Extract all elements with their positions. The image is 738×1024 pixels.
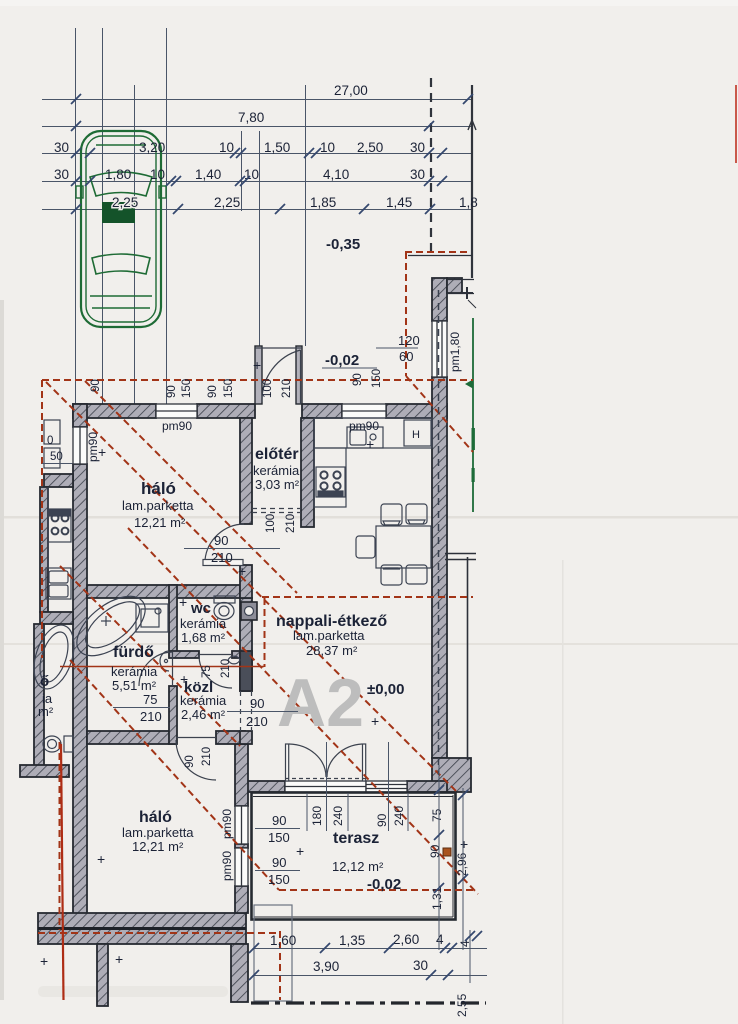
svg-text:150: 150 (181, 379, 193, 398)
svg-text:1,40: 1,40 (195, 167, 221, 182)
svg-text:+: + (371, 713, 379, 729)
svg-text:28,37 m²: 28,37 m² (306, 643, 358, 658)
svg-text:210: 210 (140, 709, 162, 724)
svg-text:1,50: 1,50 (264, 140, 290, 155)
svg-text:90: 90 (214, 533, 228, 548)
svg-text:2,60: 2,60 (393, 932, 419, 947)
svg-text:4,10: 4,10 (323, 167, 349, 182)
svg-text:100: 100 (262, 379, 274, 398)
svg-text:30: 30 (410, 167, 425, 182)
svg-text:3,90: 3,90 (313, 959, 339, 974)
svg-text:pm90: pm90 (349, 419, 379, 433)
svg-text:5,51 m²: 5,51 m² (112, 678, 157, 693)
svg-text:+: + (460, 836, 468, 852)
svg-text:27,00: 27,00 (334, 83, 368, 98)
svg-text:+: + (97, 851, 105, 867)
svg-text:-0,02: -0,02 (325, 352, 359, 369)
svg-text:90: 90 (166, 385, 178, 398)
svg-text:±0,00: ±0,00 (367, 681, 404, 698)
svg-text:90: 90 (184, 755, 196, 768)
svg-text:240: 240 (331, 806, 345, 826)
svg-text:10: 10 (320, 140, 335, 155)
svg-text:+: + (115, 951, 123, 967)
svg-text:4: 4 (436, 932, 444, 947)
svg-text:fürdő: fürdő (113, 644, 154, 661)
svg-text:0: 0 (47, 435, 53, 447)
svg-text:kerámia: kerámia (180, 616, 227, 631)
svg-text:+: + (180, 671, 188, 687)
svg-text:90: 90 (352, 373, 364, 386)
svg-text:-0,35: -0,35 (326, 236, 360, 253)
svg-text:wc: wc (190, 600, 211, 617)
svg-text:12,21 m²: 12,21 m² (132, 839, 184, 854)
svg-text:+: + (296, 843, 304, 859)
svg-text:2,25: 2,25 (214, 195, 240, 210)
svg-text:1,8: 1,8 (459, 195, 478, 210)
svg-text:75: 75 (430, 808, 444, 822)
svg-text:+: + (366, 436, 374, 452)
svg-text:2,50: 2,50 (357, 140, 383, 155)
svg-text:2,55: 2,55 (455, 993, 469, 1017)
svg-text:90: 90 (90, 379, 102, 392)
svg-text:3,03 m²: 3,03 m² (255, 477, 300, 492)
svg-text:90: 90 (428, 844, 442, 858)
svg-text:+: + (253, 357, 261, 373)
svg-text:210: 210 (201, 747, 213, 766)
svg-text:pm90: pm90 (162, 419, 192, 433)
svg-text:75: 75 (143, 692, 157, 707)
svg-text:90: 90 (272, 855, 286, 870)
svg-text:háló: háló (139, 809, 172, 826)
svg-text:1,68 m²: 1,68 m² (181, 630, 226, 645)
svg-text:210: 210 (246, 714, 268, 729)
svg-text:kerámia: kerámia (253, 463, 300, 478)
svg-text:210: 210 (285, 514, 297, 533)
svg-text:60: 60 (399, 349, 413, 364)
svg-text:210: 210 (211, 550, 233, 565)
svg-text:12,21 m²: 12,21 m² (134, 515, 186, 530)
svg-text:A2: A2 (277, 665, 364, 741)
svg-text:1,80: 1,80 (105, 167, 131, 182)
svg-text:1,85: 1,85 (310, 195, 336, 210)
svg-text:150: 150 (268, 830, 290, 845)
svg-text:m²: m² (38, 704, 54, 719)
svg-text:lam.parketta: lam.parketta (122, 498, 194, 513)
svg-text:ő: ő (40, 673, 49, 690)
svg-text:240: 240 (392, 806, 406, 826)
svg-text:30: 30 (54, 167, 69, 182)
svg-text:30: 30 (54, 140, 69, 155)
svg-text:2,46 m²: 2,46 m² (181, 707, 226, 722)
svg-text:180: 180 (310, 806, 324, 826)
svg-text:-0,02: -0,02 (367, 876, 401, 893)
svg-text:75: 75 (201, 665, 213, 678)
svg-text:lam.parketta: lam.parketta (122, 825, 194, 840)
svg-text:30: 30 (413, 958, 428, 973)
svg-text:10: 10 (150, 167, 165, 182)
svg-text:háló: háló (141, 479, 176, 498)
svg-text:3,20: 3,20 (139, 140, 165, 155)
svg-text:pm90: pm90 (220, 809, 234, 839)
svg-text:7,80: 7,80 (238, 110, 264, 125)
svg-text:1,60: 1,60 (270, 933, 296, 948)
svg-text:+: + (98, 444, 106, 460)
svg-text:pm90: pm90 (220, 851, 234, 881)
svg-text:210: 210 (220, 659, 232, 678)
svg-text:+: + (179, 594, 187, 610)
svg-text:kerámia: kerámia (180, 693, 227, 708)
svg-text:előtér: előtér (255, 446, 299, 463)
svg-text:kerámia: kerámia (111, 664, 158, 679)
svg-text:90: 90 (207, 385, 219, 398)
svg-text:2,96: 2,96 (455, 852, 469, 876)
svg-text:90: 90 (375, 813, 389, 827)
svg-text:1,45: 1,45 (386, 195, 412, 210)
svg-text:2,25: 2,25 (112, 195, 138, 210)
svg-text:150: 150 (223, 379, 235, 398)
svg-text:30: 30 (410, 140, 425, 155)
svg-text:100: 100 (265, 514, 277, 533)
svg-text:90: 90 (272, 813, 286, 828)
svg-text:H: H (412, 429, 420, 441)
svg-text:lam.parketta: lam.parketta (293, 628, 365, 643)
svg-text:pm1,80: pm1,80 (448, 332, 462, 372)
svg-text:+: + (238, 563, 246, 579)
svg-text:120: 120 (398, 333, 420, 348)
svg-text:12,12 m²: 12,12 m² (332, 859, 384, 874)
svg-text:+: + (40, 953, 48, 969)
svg-text:210: 210 (281, 379, 293, 398)
svg-text:150: 150 (268, 872, 290, 887)
svg-text:terasz: terasz (333, 830, 379, 847)
svg-text:150: 150 (371, 369, 383, 388)
svg-text:1,35: 1,35 (339, 933, 365, 948)
svg-text:50: 50 (50, 451, 63, 463)
svg-text:90: 90 (250, 696, 264, 711)
svg-text:10: 10 (219, 140, 234, 155)
